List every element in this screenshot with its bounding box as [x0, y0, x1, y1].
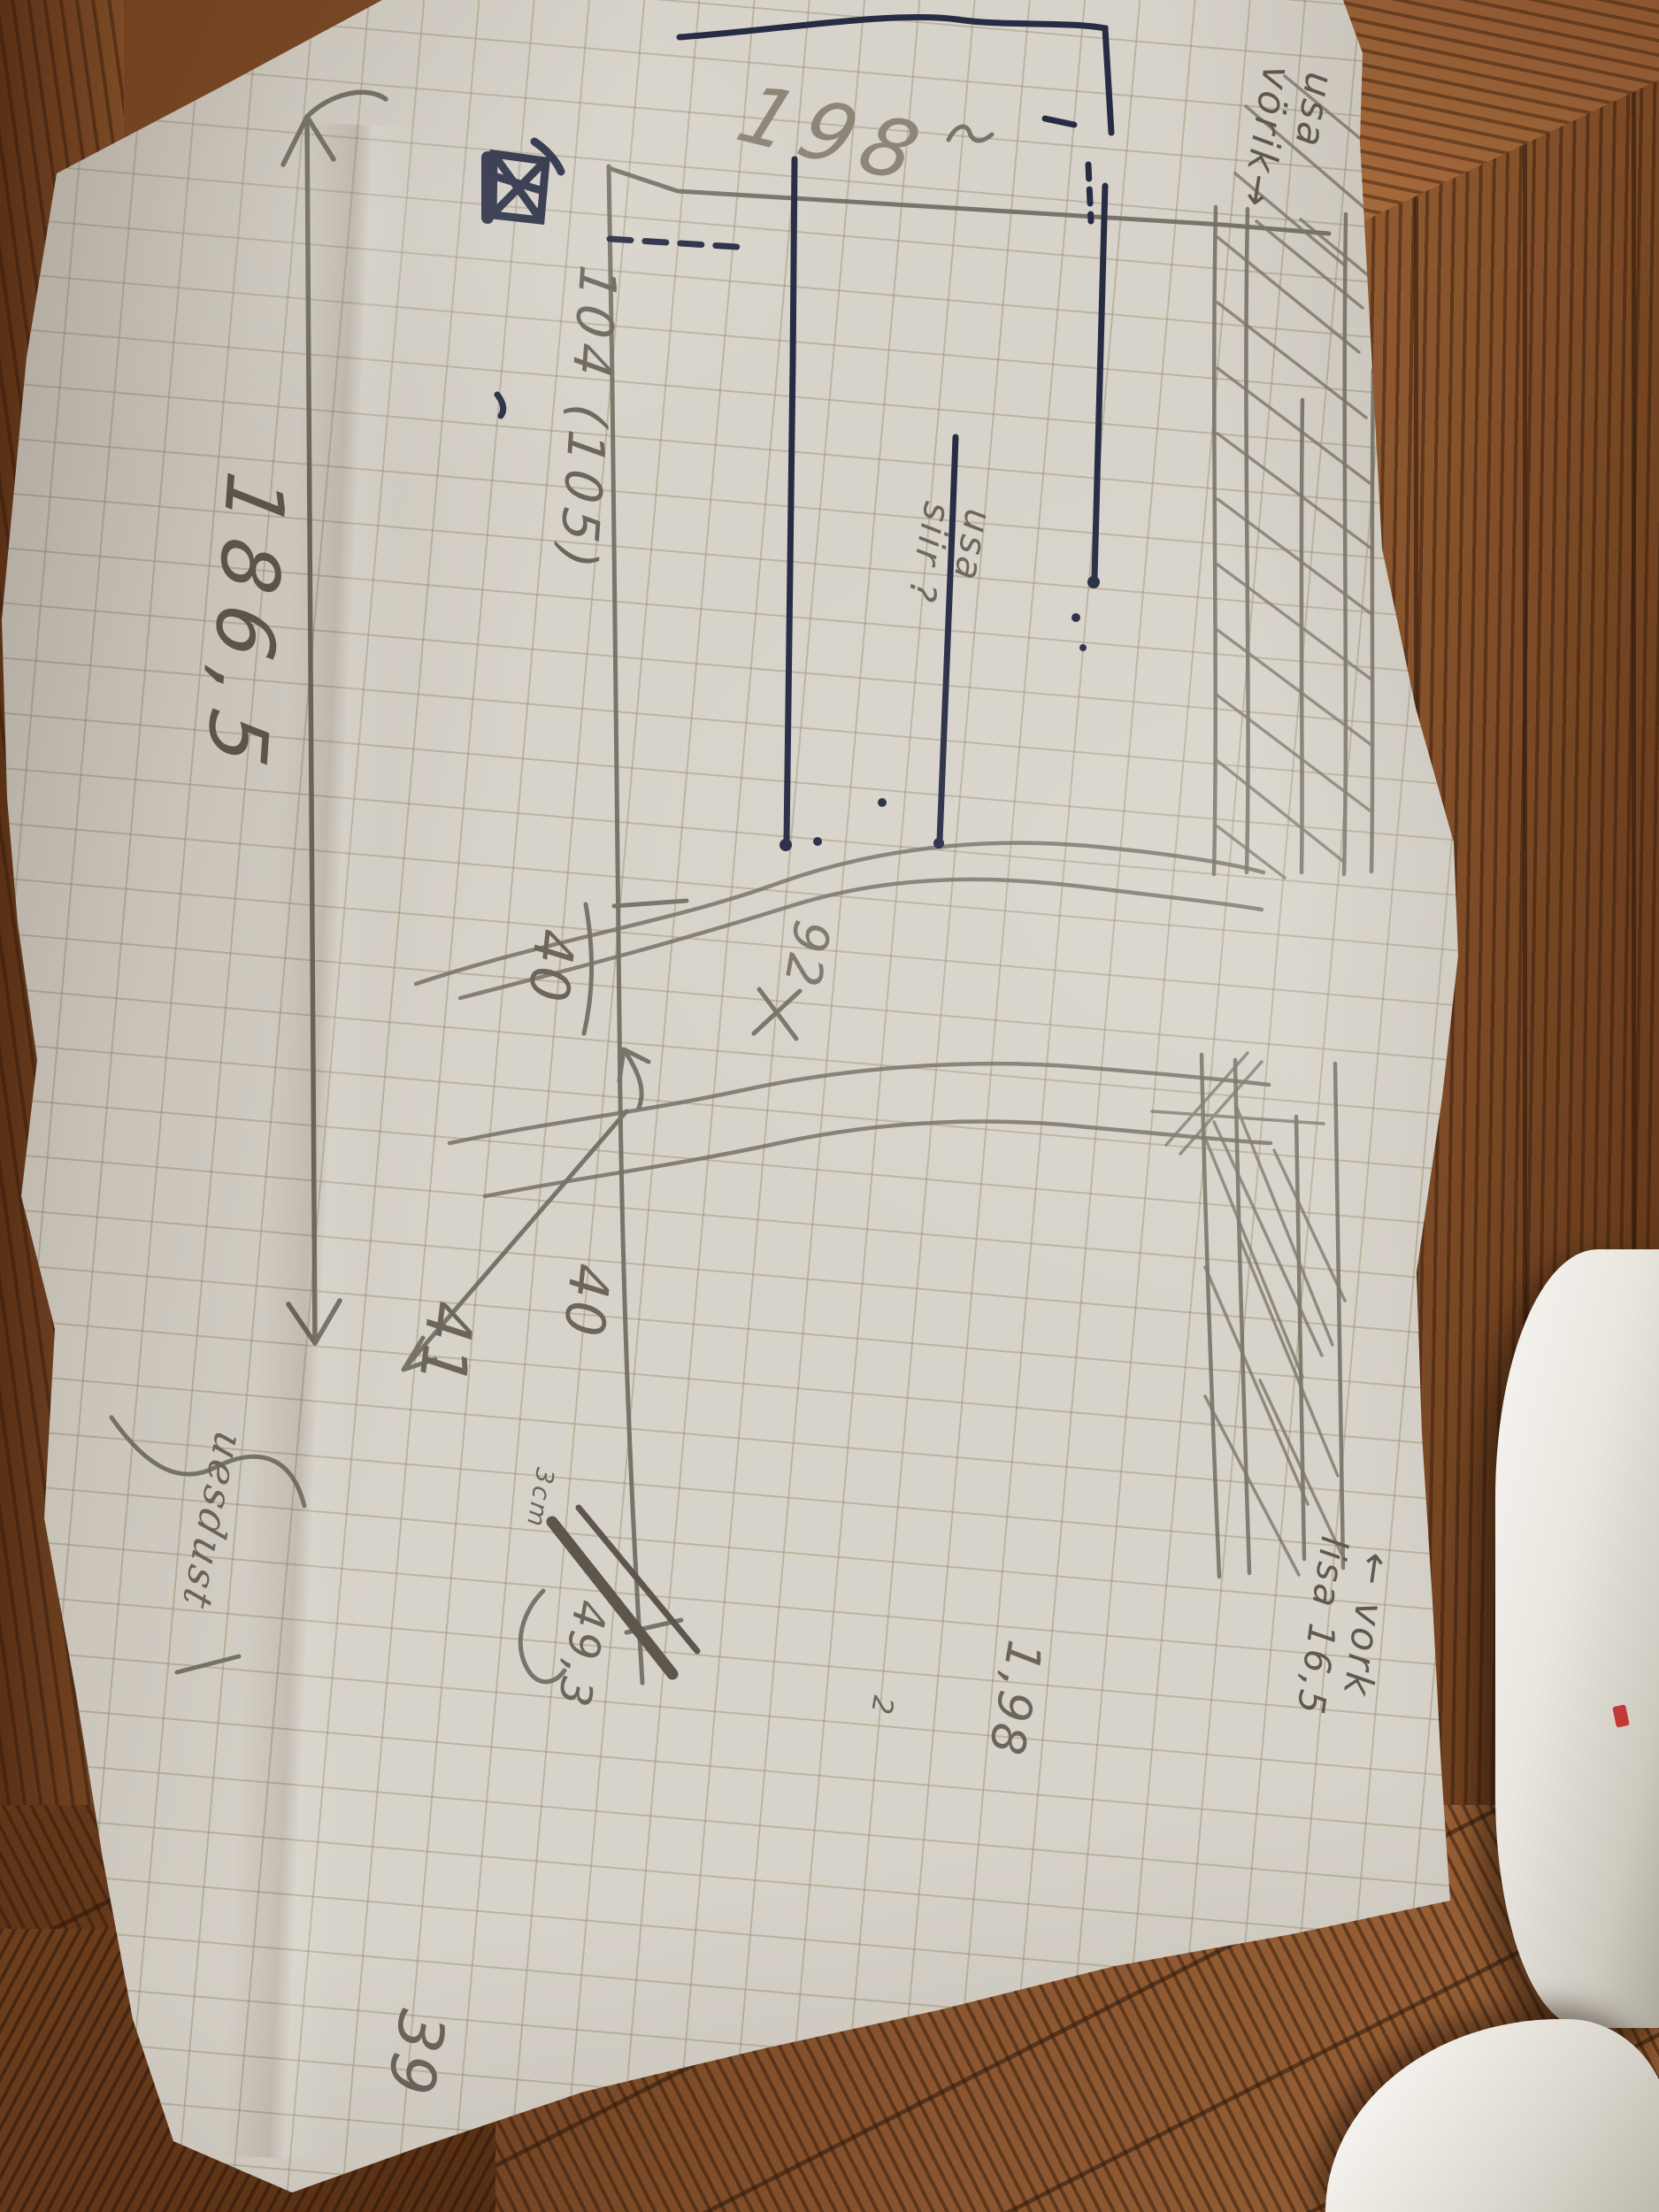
dim-39-label: 39	[373, 2005, 458, 2102]
underline-40	[584, 904, 592, 1033]
dim-41-label: 41	[405, 1297, 487, 1392]
pencil-outline	[111, 127, 1329, 1683]
note-usa-siir-label: usa siir ?	[900, 499, 1000, 615]
ink-dashed-h	[610, 239, 750, 248]
ink-vertical-1	[787, 159, 795, 841]
break-lines	[416, 843, 1271, 1196]
mark-92-label: 92	[772, 916, 839, 993]
dim-40-lower-label: 40	[552, 1261, 621, 1342]
ink-vertical-2	[1094, 186, 1105, 577]
dimension-line-186-5	[283, 92, 386, 1343]
ink-dashed-v	[1088, 165, 1091, 221]
arrow-40	[619, 1049, 649, 1108]
ink-vertical-3	[940, 437, 956, 841]
tick-104-end	[614, 901, 687, 906]
photo-of-sketch: 198 185 usa vörik→ 104 (105) usa siir ? …	[0, 0, 1659, 2212]
u-squiggle	[949, 127, 992, 141]
ink-box-symbol	[488, 142, 561, 220]
hatch-band-edges	[1202, 207, 1373, 1577]
porcelain-object	[1495, 1249, 1659, 2028]
dim-186-5-label: 186,5	[189, 465, 301, 786]
red-logo-mark	[1612, 1704, 1630, 1728]
x-mark	[754, 989, 800, 1039]
dim-40-upper-label: 40	[517, 926, 586, 1008]
top-dimension-line-198	[609, 168, 1329, 234]
t-cross-stroke	[177, 1656, 239, 1672]
ink-comma	[497, 395, 503, 416]
ink-dash	[1045, 119, 1074, 125]
